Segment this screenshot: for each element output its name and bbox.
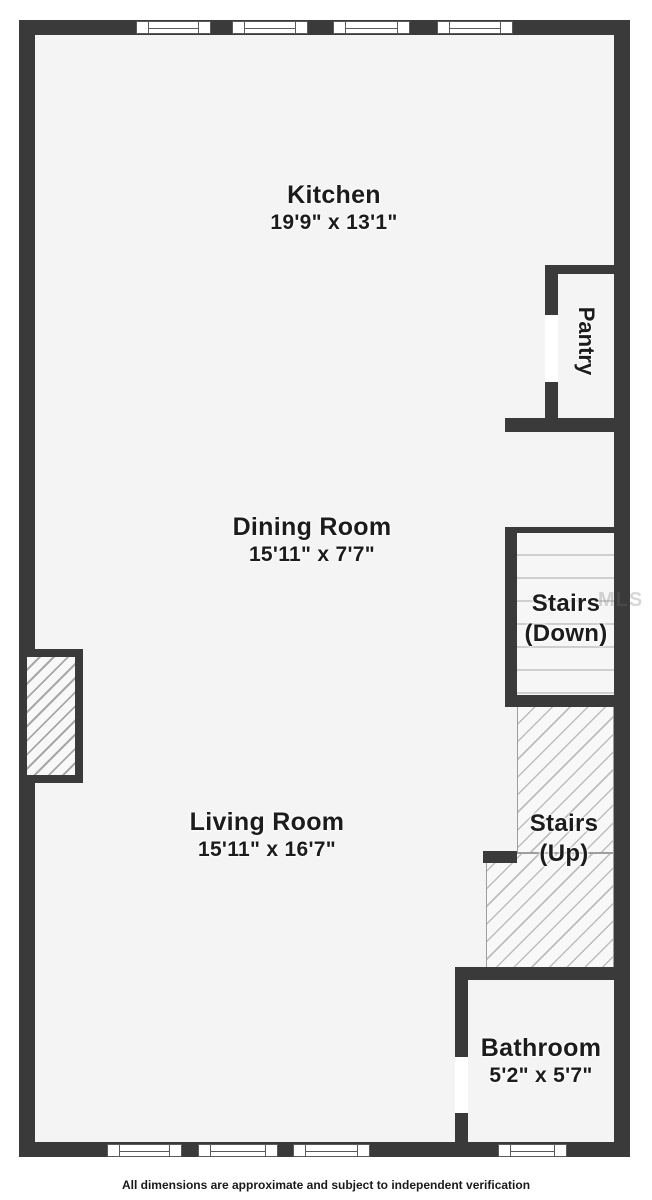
kitchen-label: Kitchen 19'9" x 13'1"	[270, 181, 397, 235]
stairs-label-line: Stairs	[524, 589, 607, 619]
window-pane	[345, 21, 398, 34]
window-pane	[244, 21, 296, 34]
window-icon	[198, 1144, 278, 1157]
room-name: Bathroom	[481, 1034, 601, 1063]
outer-wall-left	[19, 20, 35, 1157]
stairs-down-label: Stairs (Down)	[524, 589, 607, 649]
window-icon	[136, 21, 211, 34]
window-icon	[293, 1144, 370, 1157]
room-dimensions: 5'2" x 5'7"	[481, 1063, 601, 1088]
window-pane	[449, 21, 501, 34]
room-name: Dining Room	[233, 513, 392, 542]
window-pane	[119, 1144, 170, 1157]
bathroom-label: Bathroom 5'2" x 5'7"	[481, 1034, 601, 1088]
window-pane	[510, 1144, 555, 1157]
outer-wall-top	[19, 20, 630, 35]
room-dimensions: 19'9" x 13'1"	[270, 210, 397, 235]
room-dimensions: 15'11" x 16'7"	[190, 837, 345, 862]
room-dimensions: 15'11" x 7'7"	[233, 542, 392, 567]
room-name: Living Room	[190, 808, 345, 837]
bathroom-window-icon	[498, 1144, 567, 1157]
floor-plan: Kitchen 19'9" x 13'1" Pantry Dining Room…	[0, 0, 652, 1200]
bathroom-door-opening	[455, 1057, 468, 1113]
bathroom-wall-left	[455, 967, 468, 1142]
stairs-up-hatch-icon	[486, 853, 614, 967]
stairs-label-line: (Down)	[524, 619, 607, 649]
window-pane	[148, 21, 199, 34]
fireplace-icon	[19, 649, 83, 783]
window-icon	[333, 21, 410, 34]
stairs-up-step-wall	[483, 851, 517, 863]
living-room-label: Living Room 15'11" x 16'7"	[190, 808, 345, 862]
stairs-up-label: Stairs (Up)	[530, 809, 599, 869]
window-pane	[210, 1144, 266, 1157]
stairs-label-line: (Up)	[530, 839, 599, 869]
bathroom-wall-top	[455, 967, 614, 980]
stairs-down-wall-left	[505, 527, 517, 707]
pantry-label: Pantry	[573, 307, 599, 375]
window-icon	[232, 21, 308, 34]
stairs-divider-wall	[505, 695, 614, 707]
pantry-wall-bottom	[505, 418, 614, 432]
room-name: Pantry	[574, 307, 599, 375]
dining-room-label: Dining Room 15'11" x 7'7"	[233, 513, 392, 567]
pantry-door-opening	[545, 315, 558, 382]
window-pane	[305, 1144, 358, 1157]
window-icon	[437, 21, 513, 34]
window-icon	[107, 1144, 182, 1157]
disclaimer-text: All dimensions are approximate and subje…	[0, 1178, 652, 1192]
stairs-label-line: Stairs	[530, 809, 599, 839]
room-name: Kitchen	[270, 181, 397, 210]
mls-watermark: MLS	[598, 589, 643, 612]
